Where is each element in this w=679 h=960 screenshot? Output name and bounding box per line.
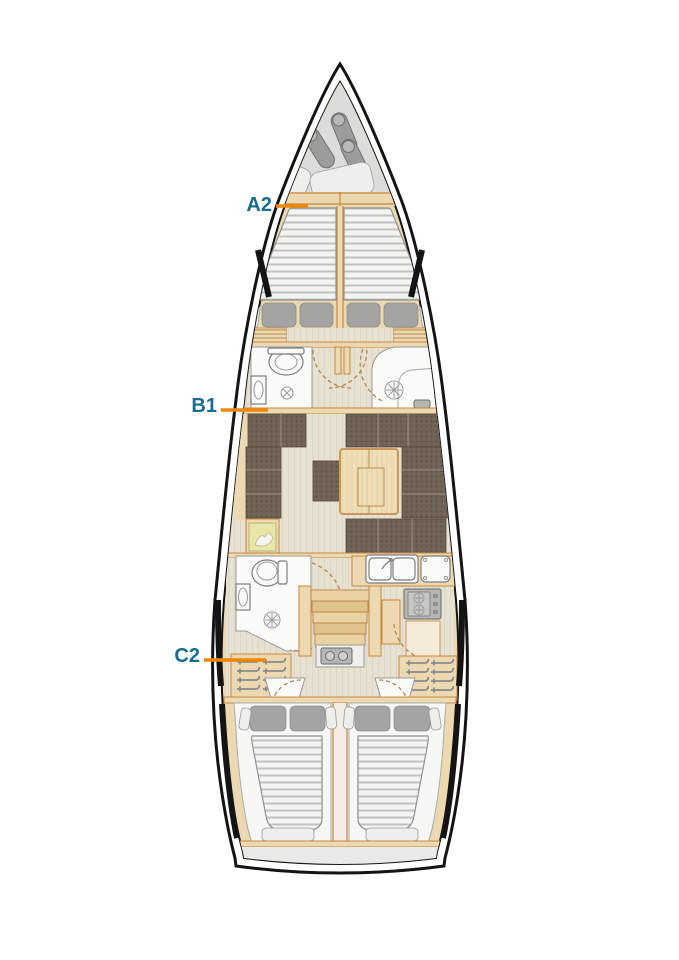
label-c2-text: C2: [174, 645, 200, 667]
shower-drain-icon: [264, 612, 280, 628]
pillow: [347, 303, 380, 327]
aft-cabin-starboard: [343, 703, 446, 843]
fridge-top: [421, 556, 450, 582]
hull-window-icon: [218, 600, 221, 686]
sink-icon: [414, 400, 430, 408]
companionway-rail: [299, 586, 311, 656]
pillow: [394, 706, 430, 731]
door-post: [335, 347, 341, 374]
stove-icon: [404, 589, 441, 619]
label-b1-text: B1: [191, 395, 217, 417]
cabinet: [382, 600, 400, 644]
forward-heads-area: [230, 347, 450, 410]
yacht-layout-plan: A2 B1 C2: [0, 0, 679, 960]
sink-icon: [251, 376, 266, 404]
pillow-small: [325, 707, 337, 730]
pillow: [250, 706, 286, 731]
locker-louver-starboard: [393, 328, 430, 342]
pillow: [290, 706, 325, 731]
door-post: [344, 347, 350, 374]
engine-icon: [321, 648, 352, 664]
bed-foot-locker: [262, 828, 314, 841]
companionway-steps: [311, 590, 369, 645]
pillow: [384, 303, 418, 327]
galley-counter: [406, 621, 440, 659]
pillow: [262, 303, 296, 327]
bulkhead-stern: [230, 841, 450, 847]
companionway-rail: [369, 586, 381, 656]
forepeak-locker: [248, 80, 430, 206]
pillow: [355, 706, 390, 731]
bed-foot-locker: [366, 828, 418, 841]
bulkhead-aft: [224, 697, 456, 703]
chart-table: [246, 519, 279, 556]
pillow-small: [343, 707, 355, 730]
aft-cabin-port: [234, 703, 337, 843]
hull-window-icon: [459, 600, 462, 686]
locker-louver-port: [250, 328, 287, 342]
galley-sink-icon: [366, 555, 418, 583]
ottoman: [313, 461, 341, 501]
label-a2-text: A2: [246, 194, 272, 216]
shower-drain-icon: [385, 381, 403, 399]
head-forward-port: [251, 347, 312, 410]
salon: [226, 414, 456, 556]
pillow: [300, 303, 333, 327]
salon-table: [340, 449, 398, 514]
